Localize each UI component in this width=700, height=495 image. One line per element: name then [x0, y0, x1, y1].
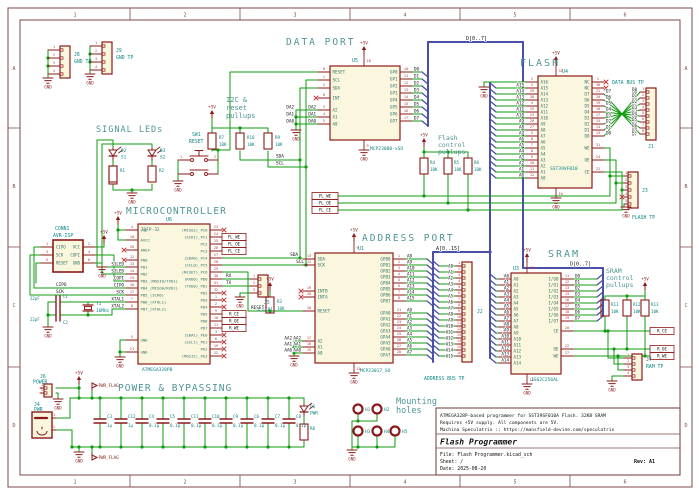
- svg-text:PB4_(MISO0/RXD1): PB4_(MISO0/RXD1): [141, 285, 178, 290]
- svg-text:U3: U3: [513, 266, 519, 272]
- connector-j6-power[interactable]: 12J6POWER: [33, 374, 52, 397]
- svg-text:FL_CE: FL_CE: [319, 208, 332, 213]
- svg-text:A10: A10: [501, 333, 509, 338]
- svg-text:A13: A13: [541, 97, 549, 102]
- svg-text:C10: C10: [212, 414, 220, 419]
- svg-text:10K: 10K: [633, 309, 641, 314]
- svg-text:16: 16: [457, 351, 461, 355]
- svg-text:A14: A14: [446, 347, 454, 352]
- svg-text:6: 6: [323, 67, 325, 71]
- svg-text:DA1: DA1: [286, 112, 294, 117]
- svg-text:24: 24: [596, 155, 600, 159]
- svg-text:21: 21: [397, 308, 401, 312]
- svg-text:26: 26: [397, 338, 401, 342]
- svg-text:POWER & BYPASSING: POWER & BYPASSING: [118, 383, 232, 394]
- svg-text:D3: D3: [606, 112, 612, 117]
- svg-text:GND: GND: [290, 363, 298, 368]
- svg-text:1: 1: [95, 41, 97, 45]
- svg-text:S1: S1: [121, 155, 127, 161]
- svg-text:5: 5: [398, 278, 400, 282]
- svg-text:H2: H2: [384, 407, 390, 413]
- svg-text:2: 2: [323, 83, 325, 87]
- svg-text:6: 6: [623, 480, 626, 486]
- svg-text:3: 3: [53, 61, 55, 65]
- svg-text:D4: D4: [414, 94, 420, 99]
- svg-text:D0: D0: [575, 273, 581, 278]
- svg-text:R8: R8: [310, 426, 316, 431]
- svg-text:D7: D7: [414, 115, 420, 120]
- resistor-r4[interactable]: R410K: [420, 158, 438, 174]
- svg-text:FL_WE: FL_WE: [319, 194, 332, 199]
- svg-text:H3: H3: [365, 429, 371, 435]
- svg-text:J2: J2: [477, 309, 483, 315]
- svg-text:INT: INT: [333, 95, 341, 100]
- svg-text:+5V: +5V: [100, 229, 108, 235]
- svg-text:GPB7: GPB7: [380, 298, 391, 303]
- svg-text:19: 19: [596, 101, 600, 105]
- svg-text:(SDA0)_PC4: (SDA0)_PC4: [184, 255, 208, 260]
- svg-text:GND: GND: [44, 334, 52, 339]
- svg-text:27: 27: [565, 351, 569, 355]
- svg-text:A12: A12: [446, 335, 454, 340]
- resistor-r13[interactable]: R1310K: [641, 300, 659, 316]
- svg-text:R_OE: R_OE: [657, 347, 667, 352]
- svg-text:CONN1: CONN1: [55, 226, 70, 232]
- svg-text:CE: CE: [584, 169, 590, 174]
- svg-text:4: 4: [625, 192, 627, 196]
- svg-text:22: 22: [596, 167, 600, 171]
- svg-text:A0: A0: [514, 276, 520, 281]
- svg-text:4: 4: [642, 105, 644, 109]
- svg-text:A13: A13: [501, 351, 509, 356]
- svg-text:VCC: VCC: [73, 245, 81, 250]
- svg-text:(RXD0)_PD0: (RXD0)_PD0: [184, 276, 208, 281]
- svg-text:3: 3: [253, 288, 255, 292]
- svg-text:32: 32: [214, 288, 218, 292]
- svg-text:C12: C12: [128, 414, 136, 419]
- svg-text:D: D: [12, 423, 15, 429]
- svg-text:A6: A6: [519, 136, 525, 141]
- svg-text:R_WE: R_WE: [229, 326, 239, 331]
- svg-text:2: 2: [183, 480, 186, 486]
- svg-text:NC: NC: [584, 85, 590, 90]
- svg-text:FL_OE: FL_OE: [228, 242, 241, 247]
- resistor-r2[interactable]: R2: [148, 166, 165, 182]
- svg-text:0.1µ: 0.1µ: [170, 423, 181, 428]
- svg-text:SDA: SDA: [276, 154, 284, 160]
- svg-text:GND: GND: [54, 406, 62, 411]
- svg-text:ATMEGA328P-based programmer fo: ATMEGA328P-based programmer for SST39SF0…: [440, 413, 606, 419]
- svg-text:I2C &: I2C &: [226, 96, 248, 104]
- connector-conn1-avr-isp[interactable]: CONN1AVR-ISP12CIPOVCC34SCKCOPI56RESETGND: [41, 226, 95, 272]
- svg-text:GP6: GP6: [390, 111, 398, 116]
- svg-text:D0: D0: [414, 66, 420, 71]
- svg-text:R1: R1: [120, 168, 126, 173]
- svg-text:A12: A12: [514, 348, 522, 353]
- svg-text:PD2: PD2: [200, 290, 208, 295]
- svg-text:FL_OE: FL_OE: [319, 201, 332, 206]
- svg-text:pullups: pullups: [606, 281, 633, 289]
- svg-text:A8: A8: [514, 324, 520, 329]
- svg-text:D2: D2: [121, 148, 127, 154]
- svg-text:INTB: INTB: [318, 288, 329, 293]
- svg-text:5: 5: [625, 199, 627, 203]
- ic-flash-u4[interactable]: U4SST39VF0102A163A15A1529A14A1428A13A134…: [516, 50, 611, 209]
- svg-text:1: 1: [625, 171, 627, 175]
- svg-text:I/O1: I/O1: [548, 282, 559, 287]
- resistor-r6[interactable]: R610K: [464, 158, 482, 174]
- svg-text:A4: A4: [504, 297, 510, 302]
- svg-text:18: 18: [130, 235, 134, 239]
- svg-text:(SCL0)_PC5: (SCL0)_PC5: [184, 262, 208, 267]
- svg-text:1: 1: [73, 13, 76, 19]
- ic-mcu-u6[interactable]: U6ATMEGA328PBTQFP-324VCC18AVCC20AREF12PB…: [111, 217, 226, 373]
- svg-text:D4: D4: [606, 106, 612, 111]
- svg-text:GPA2: GPA2: [380, 322, 391, 327]
- svg-text:22pF: 22pF: [30, 317, 40, 322]
- svg-text:8: 8: [398, 296, 400, 300]
- svg-text:26: 26: [530, 119, 534, 123]
- svg-text:D6: D6: [584, 97, 590, 102]
- ic-data-port-u5[interactable]: U5MCP23008-xSO6RESET1SCL2SDA8INT3A2DA24A…: [308, 40, 419, 161]
- svg-text:D3: D3: [575, 291, 581, 296]
- svg-text:FLASH TP: FLASH TP: [632, 215, 655, 221]
- svg-text:C7: C7: [275, 414, 281, 419]
- svg-text:14: 14: [130, 269, 134, 273]
- svg-text:AA1: AA1: [293, 341, 301, 346]
- svg-text:SDA: SDA: [333, 85, 341, 90]
- svg-text:SRAM: SRAM: [548, 249, 580, 260]
- svg-text:GPB4: GPB4: [380, 280, 391, 285]
- svg-text:22: 22: [214, 351, 218, 355]
- svg-text:D2: D2: [584, 121, 590, 126]
- svg-text:32: 32: [559, 69, 563, 73]
- svg-text:3: 3: [323, 105, 325, 109]
- svg-text:D1: D1: [584, 127, 590, 132]
- svg-text:22: 22: [565, 344, 569, 348]
- svg-text:VCC: VCC: [141, 227, 149, 232]
- svg-text:A6: A6: [504, 309, 510, 314]
- svg-text:C3: C3: [107, 414, 113, 419]
- svg-text:A15: A15: [541, 85, 549, 90]
- title-block: ATMEGA328P-based programmer for SST39SF0…: [436, 408, 680, 475]
- svg-text:AA2: AA2: [284, 336, 292, 341]
- svg-text:2: 2: [531, 77, 533, 81]
- svg-text:R9: R9: [275, 135, 281, 140]
- led-d3-s2[interactable]: D3S2: [148, 147, 166, 161]
- svg-text:R7: R7: [219, 135, 225, 140]
- svg-text:29: 29: [214, 267, 218, 271]
- svg-text:3: 3: [642, 99, 644, 103]
- svg-text:PC3: PC3: [200, 248, 208, 253]
- svg-text:C9: C9: [233, 414, 239, 419]
- svg-text:4: 4: [95, 65, 97, 69]
- svg-text:31: 31: [214, 281, 218, 285]
- svg-text:+5V: +5V: [552, 50, 560, 56]
- svg-text:A10: A10: [541, 115, 549, 120]
- svg-text:SCL: SCL: [296, 259, 304, 265]
- svg-text:+5V: +5V: [420, 132, 428, 138]
- svg-text:2: 2: [88, 242, 90, 246]
- svg-text:DA2: DA2: [286, 105, 294, 110]
- svg-text:D2: D2: [414, 80, 420, 85]
- svg-text:4: 4: [403, 13, 406, 19]
- svg-text:I/O2: I/O2: [548, 288, 559, 293]
- svg-text:6: 6: [398, 284, 400, 288]
- svg-text:PB2: PB2: [141, 271, 149, 276]
- svg-text:RAM TP: RAM TP: [646, 364, 663, 370]
- svg-text:1: 1: [458, 261, 460, 265]
- svg-text:A10: A10: [514, 336, 522, 341]
- svg-text:19: 19: [214, 344, 218, 348]
- svg-text:17: 17: [404, 116, 408, 120]
- svg-text:A6: A6: [407, 343, 413, 348]
- svg-text:Rev: A1: Rev: A1: [634, 459, 655, 465]
- svg-text:A1: A1: [318, 344, 324, 349]
- svg-text:(SCL1)_PE1: (SCL1)_PE1: [184, 339, 208, 344]
- resistor-r9[interactable]: R910K: [264, 133, 283, 149]
- svg-text:(RESET)_PC6: (RESET)_PC6: [182, 269, 208, 274]
- resistor-r12[interactable]: R1210K: [623, 300, 641, 316]
- svg-text:R_OE: R_OE: [229, 319, 239, 324]
- svg-text:D6: D6: [575, 309, 581, 314]
- svg-text:H5: H5: [402, 429, 408, 435]
- svg-text:A3: A3: [514, 294, 520, 299]
- svg-text:D5: D5: [632, 117, 637, 122]
- svg-text:1: 1: [215, 295, 217, 299]
- svg-text:A11: A11: [541, 109, 549, 114]
- svg-text:PB1: PB1: [141, 264, 149, 269]
- svg-text:J1: J1: [648, 144, 654, 150]
- svg-text:AA1: AA1: [284, 342, 292, 347]
- svg-text:27: 27: [397, 344, 401, 348]
- svg-text:SCL: SCL: [276, 161, 284, 167]
- svg-text:4: 4: [458, 279, 460, 283]
- svg-text:6: 6: [531, 137, 533, 141]
- svg-text:CE: CE: [553, 328, 559, 333]
- svg-text:A6: A6: [541, 139, 547, 144]
- svg-text:PC2: PC2: [200, 241, 208, 246]
- svg-text:GPB5: GPB5: [380, 286, 391, 291]
- svg-text:A2: A2: [448, 275, 453, 280]
- svg-text:S1LED: S1LED: [111, 261, 124, 266]
- svg-text:D3: D3: [584, 115, 590, 120]
- svg-text:A1: A1: [504, 279, 510, 284]
- svg-text:A16: A16: [541, 79, 549, 84]
- svg-text:A1: A1: [333, 114, 339, 119]
- svg-text:A7: A7: [541, 133, 547, 138]
- svg-text:12: 12: [307, 260, 311, 264]
- svg-text:GND: GND: [98, 274, 106, 279]
- svg-text:31: 31: [596, 143, 600, 147]
- svg-text:D7: D7: [606, 88, 612, 93]
- svg-text:13: 13: [596, 131, 600, 135]
- svg-text:1: 1: [627, 353, 629, 357]
- resistor-r5[interactable]: R510K: [444, 158, 462, 174]
- resistor-r7[interactable]: R710K: [208, 133, 227, 149]
- kicad-schematic-sheet: 112233445566AABBCCDDD[0..7]D[0..7]A[0..1…: [0, 0, 700, 495]
- svg-text:DA0: DA0: [308, 118, 316, 123]
- svg-text:DA2: DA2: [308, 104, 316, 109]
- svg-text:I/O0: I/O0: [548, 276, 559, 281]
- svg-text:WE: WE: [584, 145, 590, 150]
- svg-text:A2: A2: [519, 160, 525, 165]
- svg-text:D5: D5: [606, 100, 612, 105]
- svg-text:H1: H1: [365, 407, 371, 413]
- svg-text:D0: D0: [606, 130, 612, 135]
- svg-text:AA0: AA0: [293, 347, 301, 352]
- svg-text:+5V: +5V: [266, 276, 274, 282]
- svg-text:24: 24: [214, 232, 218, 236]
- crystal-caps[interactable]: 22pFC122pFC2: [30, 294, 68, 325]
- svg-text:A1: A1: [407, 313, 413, 318]
- svg-text:A3: A3: [519, 154, 525, 159]
- svg-text:A7: A7: [448, 305, 453, 310]
- ic-sram-u3[interactable]: U3IS62C256AL10A0A09A1A18A2A27A3A36A4A45A…: [499, 247, 581, 395]
- svg-text:18: 18: [367, 59, 371, 63]
- svg-text:R6: R6: [474, 160, 480, 165]
- svg-text:+5V: +5V: [350, 227, 358, 233]
- svg-text:GND: GND: [348, 457, 356, 462]
- svg-text:PB7_(XTAL2): PB7_(XTAL2): [141, 306, 167, 311]
- svg-text:16MHz: 16MHz: [96, 308, 110, 314]
- svg-text:4: 4: [53, 69, 55, 73]
- svg-text:GPA7: GPA7: [380, 352, 391, 357]
- svg-text:A14: A14: [516, 88, 524, 93]
- svg-text:PWR_FLAG: PWR_FLAG: [99, 383, 120, 388]
- connector-j8-gnd-tp[interactable]: 1234J8GND TP: [48, 45, 91, 78]
- svg-text:B: B: [12, 184, 15, 190]
- svg-text:16: 16: [130, 283, 134, 287]
- svg-text:H4: H4: [384, 429, 390, 435]
- svg-text:18: 18: [596, 107, 600, 111]
- resistor-r10[interactable]: R1010K: [236, 133, 255, 149]
- svg-text:A0: A0: [333, 121, 339, 126]
- svg-text:A5: A5: [504, 303, 510, 308]
- svg-text:1: 1: [46, 242, 48, 246]
- svg-text:9: 9: [458, 309, 460, 313]
- ic-address-port-u1[interactable]: U1MCP23017_SO13SDA12SCK19INTB20INTA18RES…: [293, 227, 415, 384]
- svg-text:A: A: [684, 66, 687, 72]
- svg-text:A14: A14: [501, 357, 509, 362]
- connector-j4-pwr-barrel[interactable]: 12J4PWR: [32, 402, 56, 438]
- svg-text:D0: D0: [584, 133, 590, 138]
- svg-text:A2: A2: [318, 338, 324, 343]
- svg-text:A8: A8: [448, 311, 453, 316]
- svg-text:20: 20: [565, 326, 569, 330]
- svg-text:4: 4: [131, 225, 133, 229]
- svg-text:23: 23: [530, 113, 534, 117]
- svg-text:D3: D3: [632, 105, 637, 110]
- svg-text:3: 3: [398, 266, 400, 270]
- svg-text:27: 27: [530, 125, 534, 129]
- svg-text:17: 17: [130, 290, 134, 294]
- switch-sw1-reset[interactable]: 12SW1RESET: [178, 132, 218, 176]
- svg-text:GP3: GP3: [390, 90, 398, 95]
- schematic-canvas[interactable]: 112233445566AABBCCDDD[0..7]D[0..7]A[0..1…: [0, 0, 700, 495]
- svg-text:D4: D4: [575, 297, 581, 302]
- svg-text:GPA4: GPA4: [380, 334, 391, 339]
- svg-text:C11: C11: [191, 414, 199, 419]
- svg-text:GPB2: GPB2: [380, 268, 391, 273]
- svg-text:0.1µ: 0.1µ: [212, 423, 223, 428]
- svg-text:12: 12: [130, 255, 134, 259]
- crystal-y1[interactable]: Y116MHz: [83, 301, 110, 314]
- svg-text:AREF: AREF: [141, 247, 151, 252]
- svg-text:MCP23017_SO: MCP23017_SO: [360, 368, 391, 374]
- svg-text:RESET: RESET: [56, 261, 69, 266]
- svg-text:22: 22: [397, 314, 401, 318]
- svg-text:GND: GND: [622, 214, 630, 219]
- svg-text:8: 8: [131, 304, 133, 308]
- svg-text:J3: J3: [642, 188, 648, 194]
- svg-text:XTAL1: XTAL1: [111, 296, 124, 301]
- bypass-capacitors[interactable]: C31µC121µC40.1µC50.1µC110.1µC100.1µC90.1…: [94, 414, 307, 428]
- svg-text:7: 7: [458, 297, 460, 301]
- svg-text:S2LED: S2LED: [111, 268, 124, 273]
- svg-text:10K: 10K: [247, 142, 255, 147]
- svg-text:A11: A11: [501, 339, 509, 344]
- svg-text:DA0: DA0: [286, 119, 294, 124]
- connector-j9-gnd-tp[interactable]: 1234J9GND TP: [90, 41, 133, 74]
- svg-text:C5: C5: [170, 414, 176, 419]
- svg-text:DA1: DA1: [308, 111, 316, 116]
- svg-text:28: 28: [530, 266, 534, 270]
- svg-text:IS62C256AL: IS62C256AL: [531, 377, 559, 383]
- svg-text:A8: A8: [407, 253, 413, 258]
- svg-text:SIGNAL LEDs: SIGNAL LEDs: [96, 125, 163, 135]
- svg-text:GPB6: GPB6: [380, 292, 391, 297]
- svg-text:C4: C4: [149, 414, 155, 419]
- svg-text:(SDA1)_PE0: (SDA1)_PE0: [184, 332, 208, 337]
- svg-text:26: 26: [214, 246, 218, 250]
- svg-text:COPI: COPI: [70, 253, 80, 258]
- svg-text:1: 1: [53, 45, 55, 49]
- svg-text:PB6_(XTAL1): PB6_(XTAL1): [141, 299, 167, 304]
- svg-text:GND TP: GND TP: [74, 59, 91, 65]
- svg-text:20: 20: [130, 245, 134, 249]
- svg-text:S2: S2: [160, 155, 166, 161]
- svg-text:D5: D5: [575, 303, 581, 308]
- svg-text:AVR-ISP: AVR-ISP: [53, 233, 73, 239]
- led-d2-s1[interactable]: D2S1: [109, 147, 127, 161]
- svg-text:A8: A8: [504, 321, 510, 326]
- svg-text:4: 4: [398, 272, 400, 276]
- svg-text:12: 12: [565, 280, 569, 284]
- svg-text:2: 2: [214, 155, 216, 159]
- svg-text:RESET: RESET: [189, 139, 204, 145]
- svg-text:C8: C8: [296, 414, 302, 419]
- svg-text:18: 18: [565, 310, 569, 314]
- svg-text:0.1µ: 0.1µ: [296, 423, 307, 428]
- svg-text:5: 5: [458, 285, 460, 289]
- svg-text:A1: A1: [519, 166, 525, 171]
- led-d1-pwr[interactable]: D1PWR: [300, 403, 318, 417]
- svg-text:9: 9: [215, 309, 217, 313]
- svg-text:GND: GND: [608, 388, 616, 393]
- svg-text:7: 7: [398, 290, 400, 294]
- svg-text:13: 13: [130, 262, 134, 266]
- svg-text:GND: GND: [86, 81, 94, 86]
- svg-text:4: 4: [403, 480, 406, 486]
- svg-text:9: 9: [531, 155, 533, 159]
- svg-text:11: 11: [404, 74, 408, 78]
- svg-text:17: 17: [565, 304, 569, 308]
- svg-text:2: 2: [398, 260, 400, 264]
- svg-text:10: 10: [457, 315, 461, 319]
- svg-text:J5: J5: [264, 300, 270, 306]
- svg-text:A15: A15: [516, 82, 524, 87]
